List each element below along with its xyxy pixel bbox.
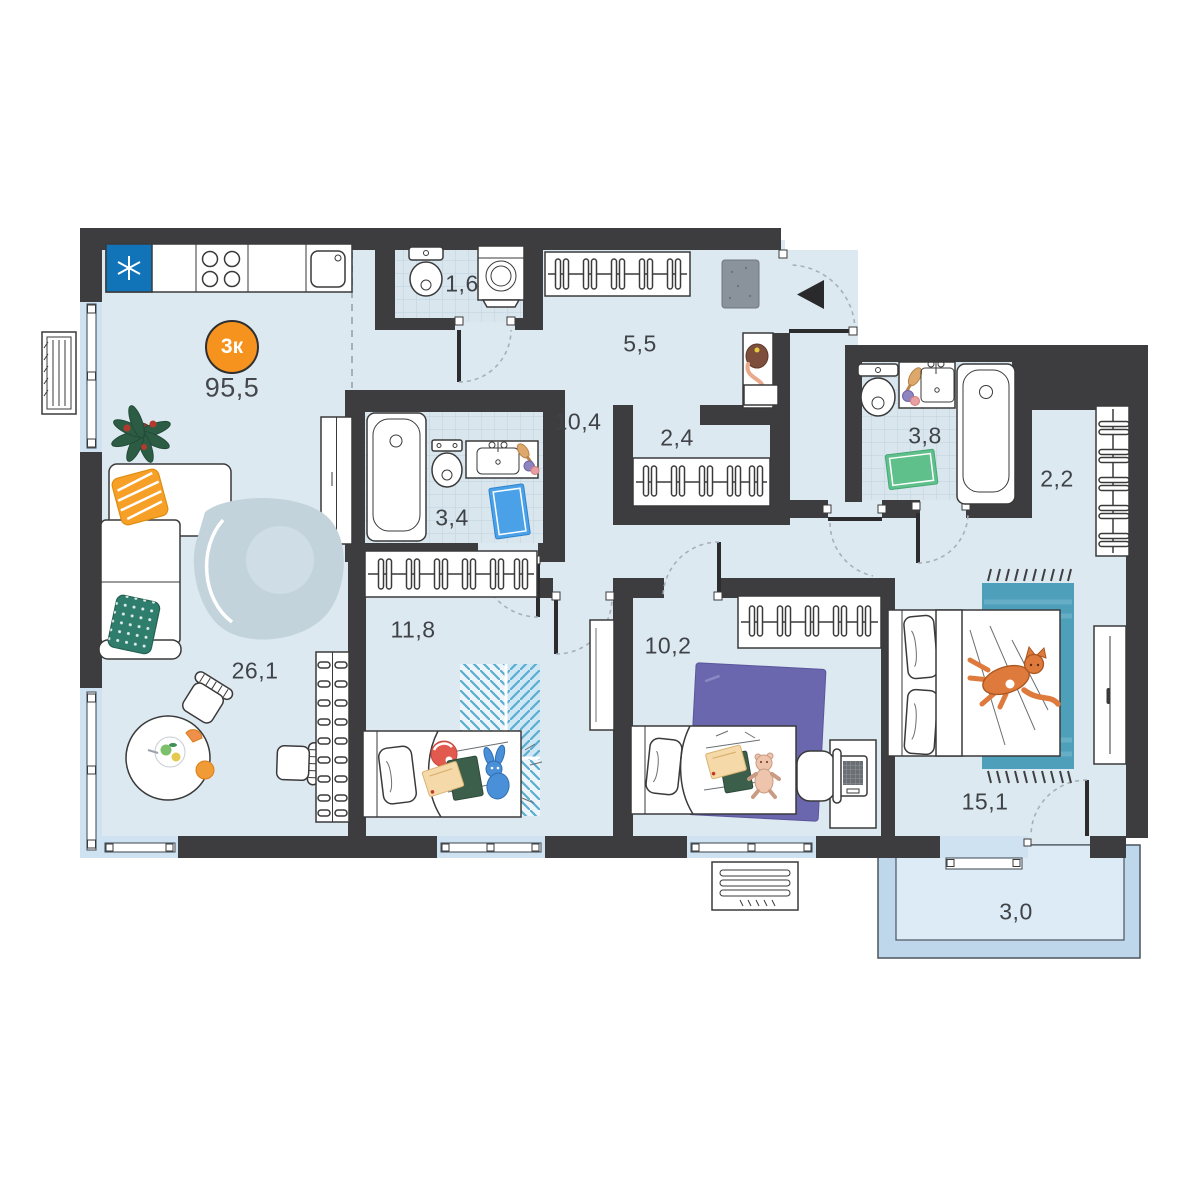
- room-area-label-storage: 2,4: [660, 425, 693, 452]
- room-area-label-kids-room: 11,8: [390, 617, 435, 644]
- window-bedroom-balcony: [940, 836, 1028, 869]
- window-kids-room: [437, 836, 545, 858]
- kids-bed-2: [631, 726, 796, 814]
- ac-unit-left: [42, 332, 76, 414]
- kids-bed: [363, 731, 542, 817]
- room-area-label-bedroom: 15,1: [962, 789, 1009, 816]
- total-area-label: 95,5: [205, 373, 260, 404]
- living-rug: [194, 498, 344, 639]
- hallway-wardrobe: [545, 252, 690, 296]
- doormat: [722, 260, 759, 308]
- room-area-label-hallway: 5,5: [623, 331, 656, 358]
- mirror-panel: [590, 620, 614, 730]
- desk-chair: [797, 749, 841, 803]
- room-area-label-balcony: 3,0: [999, 899, 1032, 926]
- bathtub-icon: [367, 413, 426, 541]
- room-area-label-kids-room-2: 10,2: [645, 633, 692, 660]
- kitchen-counter: [106, 244, 352, 292]
- green-rug: [885, 449, 938, 490]
- toilet-icon: [432, 440, 462, 487]
- room-area-label-corridor: 10,4: [555, 409, 602, 436]
- ac-unit-bottom: [712, 862, 798, 910]
- room-area-label-kitchen-living: 26,1: [232, 658, 279, 685]
- window-living-left: [80, 300, 102, 452]
- bath-rug: [489, 484, 531, 539]
- window-kids-room-2: [687, 836, 816, 858]
- apartment-type-badge: 3к: [205, 320, 259, 374]
- room-area-label-wardrobe: 2,2: [1040, 466, 1073, 493]
- orange-icon: [196, 761, 214, 779]
- bookshelf: [316, 652, 349, 822]
- double-bed: [888, 610, 1060, 756]
- washing-machine-icon: [478, 246, 524, 307]
- folded-blanket: [936, 610, 962, 756]
- toilet-icon: [409, 247, 443, 296]
- wardrobe-hangers: [365, 551, 537, 597]
- pillow: [904, 689, 938, 755]
- vanity-sink-icon: [899, 361, 955, 408]
- floor-plan: 3к 95,5 1,6 5,5 10,4 2,4 3,4 3,8 2,2 11,…: [0, 0, 1200, 1200]
- room-area-label-bathroom: 3,4: [435, 505, 468, 532]
- floor-plan-drawing: [0, 0, 1200, 1200]
- vanity-sink-icon: [466, 441, 539, 478]
- bathtub-icon: [957, 364, 1015, 504]
- pillow: [378, 745, 418, 805]
- toilet-icon: [858, 364, 898, 416]
- wardrobe-unit: [1096, 406, 1129, 556]
- bedroom-wardrobe: [1094, 626, 1126, 764]
- pillow: [645, 737, 683, 795]
- vent-shaft: [744, 385, 778, 405]
- storage-hangers: [633, 458, 770, 506]
- apartment-type-label: 3к: [221, 335, 243, 359]
- room-area-label-master-bathroom: 3,8: [908, 423, 941, 450]
- room-area-label-wc: 1,6: [445, 271, 478, 298]
- wardrobe-hangers: [738, 596, 881, 648]
- pillow: [903, 615, 938, 679]
- chair-icon: [276, 741, 319, 784]
